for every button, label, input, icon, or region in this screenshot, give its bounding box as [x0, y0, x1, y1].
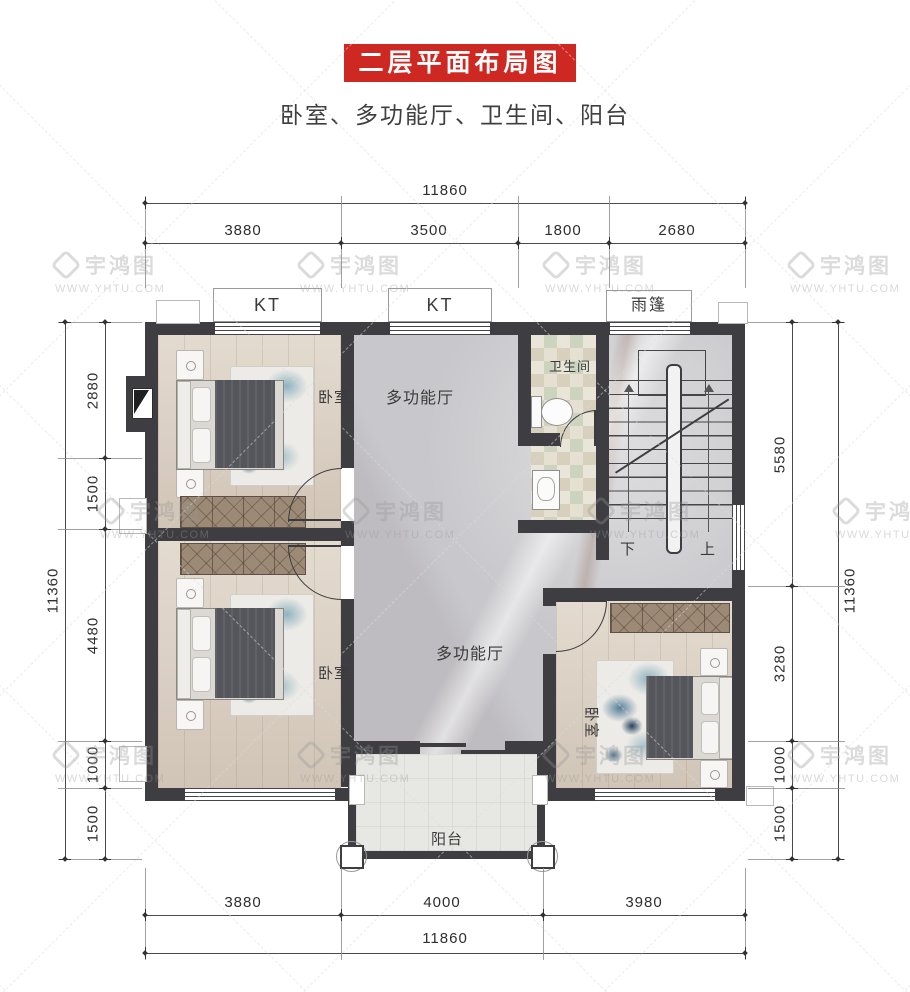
dim-dot — [142, 912, 148, 918]
nightstand — [176, 578, 204, 608]
room-label-hall-lower: 多功能厅 — [428, 640, 512, 664]
title-banner: 二层平面布局图 — [344, 44, 576, 82]
stair-label-up: 上 — [696, 538, 720, 559]
wall-bedroom-divider — [145, 528, 354, 541]
dim-dot — [835, 856, 841, 862]
watermark-logo-icon — [295, 249, 326, 280]
window-kt-left — [215, 322, 320, 335]
kt-box-left: KT — [213, 288, 322, 322]
window-sill — [718, 302, 748, 324]
watermark-logo-icon — [785, 739, 816, 770]
stair-stringer — [666, 364, 682, 554]
dim-dot — [789, 785, 795, 791]
window-sill — [119, 746, 147, 782]
r1: 宇鸿图 — [55, 250, 215, 280]
nightstand — [700, 648, 728, 676]
dim-line — [145, 915, 745, 916]
watermark-logo-icon — [830, 495, 861, 526]
r1: 宇鸿图 — [790, 250, 910, 280]
stair-arrow — [704, 384, 714, 392]
wardrobe — [180, 496, 306, 528]
dim-dot — [606, 240, 612, 246]
dim-bottom-total: 11860 — [395, 930, 495, 947]
dim-dot — [338, 240, 344, 246]
watermark-brand: 宇鸿图 — [575, 250, 647, 280]
floor-plan-page: 二层平面布局图 卧室、多功能厅、卫生间、阳台 11860 3880 3500 1… — [0, 0, 910, 992]
watermark-brand: 宇鸿图 — [865, 496, 910, 526]
wall-hall-balcony — [341, 741, 420, 754]
dim-dot — [742, 200, 748, 206]
dim-dot — [142, 950, 148, 956]
door-leaf — [594, 410, 596, 446]
dim-top-seg: 3500 — [379, 222, 479, 239]
stair-arrow — [624, 384, 634, 392]
sliding-door — [461, 750, 506, 754]
dim-dot — [789, 319, 795, 325]
watermark-site: WWW.YHTU.COM — [790, 773, 910, 785]
dim-dot — [102, 738, 108, 744]
subtitle: 卧室、多功能厅、卫生间、阳台 — [0, 96, 910, 130]
pillow — [192, 657, 211, 692]
window-sill — [156, 300, 200, 324]
window-kt-center — [390, 322, 490, 335]
watermark-brand: 宇鸿图 — [820, 250, 892, 280]
dim-line — [145, 243, 745, 244]
dim-dot — [62, 319, 68, 325]
watermark: 宇鸿图 WWW.YHTU.COM — [55, 250, 215, 295]
room-label-hall-upper: 多功能厅 — [378, 384, 462, 408]
wall-hall-bathroom — [518, 335, 531, 446]
pillow — [192, 616, 211, 651]
watermark: 宇鸿图 WWW.YHTU.COM — [545, 250, 705, 295]
bed — [176, 380, 284, 470]
dim-top-seg: 1800 — [513, 222, 613, 239]
kt-label: KT — [426, 295, 453, 315]
nightstand — [700, 760, 728, 788]
watermark-logo-icon — [50, 739, 81, 770]
balcony-column — [340, 845, 364, 869]
blanket — [215, 608, 275, 698]
room-label-bedroom-top-left: 卧室 — [304, 386, 364, 407]
stair-label-down: 下 — [616, 538, 640, 559]
dim-top-total: 11860 — [395, 182, 495, 199]
dim-bottom-seg: 3980 — [594, 894, 694, 911]
dim-left-total: 11360 — [45, 541, 62, 641]
dim-line — [838, 322, 839, 859]
r1: 宇鸿图 — [300, 250, 460, 280]
headboard — [719, 677, 733, 759]
dim-right-seg: 3280 — [772, 614, 789, 714]
window-sill — [532, 775, 548, 805]
watermark: 宇鸿图 WWW.YHTU.COM — [835, 496, 910, 541]
blanket — [215, 380, 275, 468]
wall-balcony-front — [348, 851, 545, 859]
door-leaf — [556, 600, 606, 602]
door-leaf — [288, 519, 341, 521]
dim-dot — [742, 912, 748, 918]
dim-dot — [338, 912, 344, 918]
dim-dot — [62, 856, 68, 862]
dim-line — [65, 322, 66, 859]
kt-label: KT — [254, 295, 281, 315]
watermark-brand: 宇鸿图 — [820, 740, 892, 770]
window-sill — [746, 786, 774, 806]
dim-line — [145, 953, 745, 954]
watermark-site: WWW.YHTU.COM — [835, 529, 910, 541]
dim-dot — [142, 200, 148, 206]
room-label-bedroom-right: 卧室 — [582, 701, 603, 745]
dim-right-total: 11360 — [842, 541, 859, 641]
watermark-logo-icon — [785, 249, 816, 280]
room-label-bedroom-bottom-left: 卧室 — [304, 662, 364, 683]
canopy-box: 雨篷 — [606, 290, 692, 322]
dim-left-seg: 2880 — [85, 341, 102, 441]
door-leaf — [288, 545, 341, 547]
dim-top-seg: 2680 — [627, 222, 727, 239]
flue-symbol — [134, 390, 149, 414]
wardrobe — [610, 603, 730, 633]
dim-top-seg: 3880 — [193, 222, 293, 239]
nightstand — [176, 468, 204, 498]
bed — [176, 608, 284, 700]
window-bottom-right — [595, 788, 715, 801]
dim-bottom-seg: 4000 — [392, 894, 492, 911]
dim-line — [105, 322, 106, 859]
dim-dot — [540, 912, 546, 918]
pillow — [701, 721, 719, 754]
watermark: 宇鸿图 WWW.YHTU.COM — [790, 250, 910, 295]
window-bottom-left — [185, 788, 335, 801]
dim-dot — [515, 240, 521, 246]
dim-left-seg: 4480 — [85, 586, 102, 686]
dim-line — [145, 203, 745, 204]
dim-dot — [789, 856, 795, 862]
dim-bottom-seg: 3880 — [193, 894, 293, 911]
watermark-logo-icon — [540, 249, 571, 280]
kt-box-center: KT — [388, 288, 492, 322]
dim-right-seg: 5580 — [772, 405, 789, 505]
r1: 宇鸿图 — [790, 740, 910, 770]
dim-dot — [102, 455, 108, 461]
dim-dot — [142, 240, 148, 246]
watermark-brand: 宇鸿图 — [85, 250, 157, 280]
dim-dot — [835, 319, 841, 325]
dim-line — [792, 322, 793, 859]
dim-dot — [102, 526, 108, 532]
window-sill — [349, 775, 365, 805]
dim-dot — [789, 583, 795, 589]
blanket — [647, 676, 693, 758]
dim-dot — [742, 240, 748, 246]
wall-bedroom-right-left — [543, 588, 556, 606]
window-stair-right — [732, 505, 745, 570]
pillow — [701, 682, 719, 715]
pillow — [192, 428, 211, 463]
wall-bathroom-partition — [531, 433, 560, 446]
pillow — [192, 387, 211, 422]
room-label-bathroom: 卫生间 — [540, 356, 600, 375]
sink — [532, 470, 560, 510]
dim-dot — [102, 785, 108, 791]
dim-dot — [742, 950, 748, 956]
nightstand — [176, 700, 204, 730]
dim-dot — [102, 856, 108, 862]
watermark-logo-icon — [50, 249, 81, 280]
dim-dot — [102, 319, 108, 325]
room-label-balcony: 阳台 — [417, 828, 477, 849]
window-canopy — [610, 322, 690, 335]
headboard — [177, 381, 191, 469]
r1: 宇鸿图 — [545, 250, 705, 280]
dim-dot — [789, 738, 795, 744]
nightstand — [176, 350, 204, 380]
canopy-label: 雨篷 — [631, 297, 667, 314]
r1: 宇鸿图 — [835, 496, 910, 526]
watermark: 宇鸿图 WWW.YHTU.COM — [790, 740, 910, 785]
bed — [646, 676, 734, 760]
watermark-site: WWW.YHTU.COM — [55, 283, 215, 295]
sliding-door — [420, 743, 466, 747]
headboard — [177, 609, 191, 699]
wall-hall-balcony — [505, 741, 556, 754]
balcony-column — [531, 845, 555, 869]
watermark-site: WWW.YHTU.COM — [790, 283, 910, 295]
